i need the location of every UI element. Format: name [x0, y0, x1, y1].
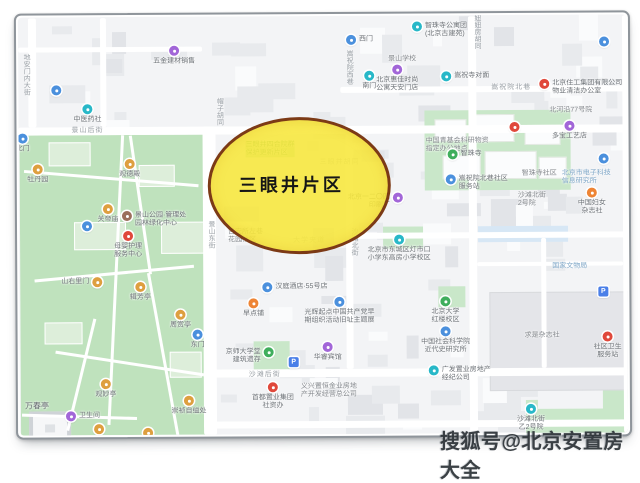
poi-label: 多宝工艺店: [530, 132, 610, 140]
poi-pin[interactable]: [248, 298, 258, 308]
poi-pin[interactable]: [193, 330, 203, 340]
poi-pin[interactable]: [82, 221, 92, 231]
poi-pin[interactable]: [587, 188, 597, 198]
poi-label: 崇祯自缢处: [149, 407, 229, 415]
poi-label: 北京住工集团有限公司物业清洁办公室: [552, 79, 622, 95]
poi-pin[interactable]: [268, 382, 278, 392]
poi-label: 首都置业集团社资办: [233, 394, 313, 410]
poi-label: 五金建材销售: [134, 58, 214, 66]
poi-label: 中医药社: [47, 116, 127, 124]
poi-pin[interactable]: [429, 365, 439, 375]
poi-label: 智珠寺公寓团(北京古建苑): [425, 22, 467, 38]
poi-label: 卫生间: [79, 412, 100, 420]
poi-label: 社区卫生服务站: [568, 343, 628, 359]
poi-pin[interactable]: [262, 282, 272, 292]
poi-pin[interactable]: [123, 231, 133, 241]
poi-label: 智珠寺: [461, 150, 482, 158]
poi-label: 中国社会科学院近代史研究所: [406, 338, 486, 354]
poi-pin[interactable]: [440, 296, 450, 306]
poi-label: 周赏亭: [141, 322, 221, 330]
poi-pin[interactable]: [66, 411, 76, 421]
poi-pin[interactable]: [135, 282, 145, 292]
poi-pin[interactable]: [33, 164, 43, 174]
poi-pin[interactable]: [94, 424, 104, 434]
poi-label: 景山公园·管理处园林绿化中心: [135, 212, 186, 228]
poi-label: 西门: [359, 36, 373, 44]
poi-pin[interactable]: [82, 104, 92, 114]
poi-label: 广发置业房地产经纪公司: [442, 366, 491, 382]
poi-pin[interactable]: [51, 85, 61, 95]
poi-pin[interactable]: [101, 379, 111, 389]
poi-pin[interactable]: [599, 154, 609, 164]
poi-pin[interactable]: [564, 121, 574, 131]
poi-label: 嵩祝院北巷社区服务站: [459, 175, 508, 191]
poi-pin[interactable]: [446, 174, 456, 184]
poi-pin[interactable]: [264, 347, 274, 357]
highlight-ellipse: 三眼井片区: [207, 117, 391, 255]
poi-pin[interactable]: [509, 122, 519, 132]
poi-label: 北京市东城区灯市口小学东高房小学校区: [359, 246, 439, 262]
poi-label: 辑芳亭: [100, 294, 180, 302]
poi-pin[interactable]: [346, 35, 356, 45]
poi-pin[interactable]: [184, 396, 194, 406]
poi-label: 母婴护理服务中心: [88, 243, 168, 259]
poi-pin[interactable]: [394, 235, 404, 245]
highlight-label: 三眼井片区: [239, 170, 344, 197]
poi-pin[interactable]: [412, 21, 422, 31]
parking-icon[interactable]: [598, 287, 608, 297]
poi-label: 北门: [18, 145, 63, 153]
poi-pin[interactable]: [125, 159, 135, 169]
watermark: 搜狐号@北京安置房大全: [440, 425, 636, 483]
poi-label: 嵩祝寺对面: [454, 72, 489, 80]
poi-pin[interactable]: [441, 71, 451, 81]
poi-pin[interactable]: [334, 297, 344, 307]
poi-pin[interactable]: [175, 310, 185, 320]
poi-label: 光辉起点中国共产党早期组织活动旧址主题展: [299, 309, 379, 325]
map-card: 地安门内大街帽子胡同景山后街嵩祝院西巷景山东街沙滩北街沙滩后街北河沿大街嵩祝院北…: [14, 10, 632, 439]
poi-label: 汉庭酒店·55号店: [275, 283, 327, 291]
poi-label: 京师大学堂建筑遗存: [226, 348, 261, 364]
poi-label: 北京大学红楼校区: [405, 308, 485, 324]
poi-label: 北京惠佳时尚公寓天安门店: [357, 76, 437, 92]
poi-pin[interactable]: [448, 149, 458, 159]
poi-pin[interactable]: [599, 36, 609, 46]
poi-pin[interactable]: [603, 331, 613, 341]
poi-pin[interactable]: [92, 277, 102, 287]
poi-label: 中国妇女杂志社: [552, 199, 628, 215]
poi-pin[interactable]: [143, 428, 153, 436]
poi-pin[interactable]: [122, 211, 132, 221]
poi-pin[interactable]: [539, 79, 549, 89]
poi-label: 华睿宾馆: [288, 354, 368, 362]
street-label: 北河沿大街: [626, 118, 628, 153]
poi-pin[interactable]: [323, 342, 333, 352]
poi-pin[interactable]: [526, 404, 536, 414]
poi-pin[interactable]: [169, 46, 179, 56]
parking-icon[interactable]: [289, 357, 299, 367]
poi-label: 早点铺: [213, 310, 293, 318]
map-canvas[interactable]: 地安门内大街帽子胡同景山后街嵩祝院西巷景山东街沙滩北街沙滩后街北河沿大街嵩祝院北…: [18, 14, 628, 435]
poi-pin[interactable]: [393, 193, 403, 203]
poi-pin[interactable]: [103, 204, 113, 214]
poi-label: 观德殿: [90, 171, 170, 179]
poi-label: 东门: [158, 341, 238, 349]
poi-label: 牡丹园: [18, 176, 78, 184]
poi-label: 山右里门: [61, 278, 89, 286]
poi-label: 观妙亭: [66, 391, 146, 399]
poi-pin[interactable]: [18, 134, 28, 144]
poi-pin[interactable]: [441, 326, 451, 336]
poi-pin[interactable]: [392, 65, 402, 75]
